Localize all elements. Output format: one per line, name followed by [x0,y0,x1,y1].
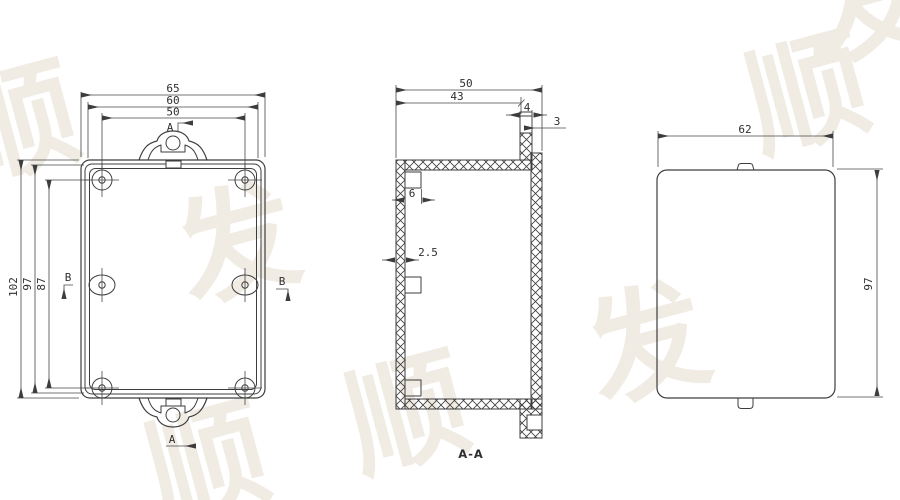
section-top-flange [520,112,532,160]
watermark-glyph: 发 [572,263,724,428]
section-bottom-wall [405,399,532,409]
drawing-canvas: 顺 发 顺 发 顺 发 顺 [0,0,900,500]
cut-label-b-right: B [279,275,286,288]
dim-front-height-lip: 97 [21,277,34,290]
front-top-mounting-ear [139,131,207,168]
section-bottom-flange [520,399,542,438]
dim-side-width: 62 [738,123,751,136]
section-top-flange-hole [520,116,532,133]
screw-hole [85,371,119,405]
watermark-glyph: 发 [162,163,314,328]
watermark-glyph: 顺 [332,333,484,498]
section-base-wall [396,160,405,409]
watermark-glyph: 顺 [132,383,284,500]
dim-section-depth-outer: 50 [459,77,472,90]
section-open-face-wall [531,153,542,409]
section-boss [405,277,421,293]
technical-drawing-page: 顺 发 顺 发 顺 发 顺 [0,0,900,500]
cut-label-a-bottom: A [169,433,176,446]
dim-section-flange-hole: 3 [554,115,561,128]
side-bottom-tab [738,398,753,409]
dim-section-wall-thickness: 2.5 [418,246,438,259]
watermark-glyph: 顺 [0,43,93,208]
bottom-ear-notch [166,399,181,406]
dim-side-height: 97 [862,277,875,290]
cut-label-a-top: A [167,121,174,134]
dim-section-depth-inner: 43 [450,90,463,103]
cut-label-b-left: B [65,271,72,284]
dim-section-flange-width: 4 [524,101,531,114]
dim-front-width-holes: 50 [166,106,179,119]
section-view: 50 43 4 3 6 2.5 A-A [382,77,566,461]
side-top-tab [737,164,754,171]
section-top-wall [405,160,532,170]
top-ear-hole [166,136,180,150]
dim-front-height-outer: 102 [7,277,20,297]
side-boss-hole [89,268,115,302]
section-boss [405,172,421,188]
dim-front-height-holes: 87 [35,277,48,290]
top-ear-notch [166,161,181,168]
section-bottom-flange-hole [527,415,542,430]
watermark: 顺 发 顺 发 顺 发 顺 [0,0,900,500]
dim-section-boss-width: 6 [409,187,416,200]
section-caption: A-A [458,447,484,461]
